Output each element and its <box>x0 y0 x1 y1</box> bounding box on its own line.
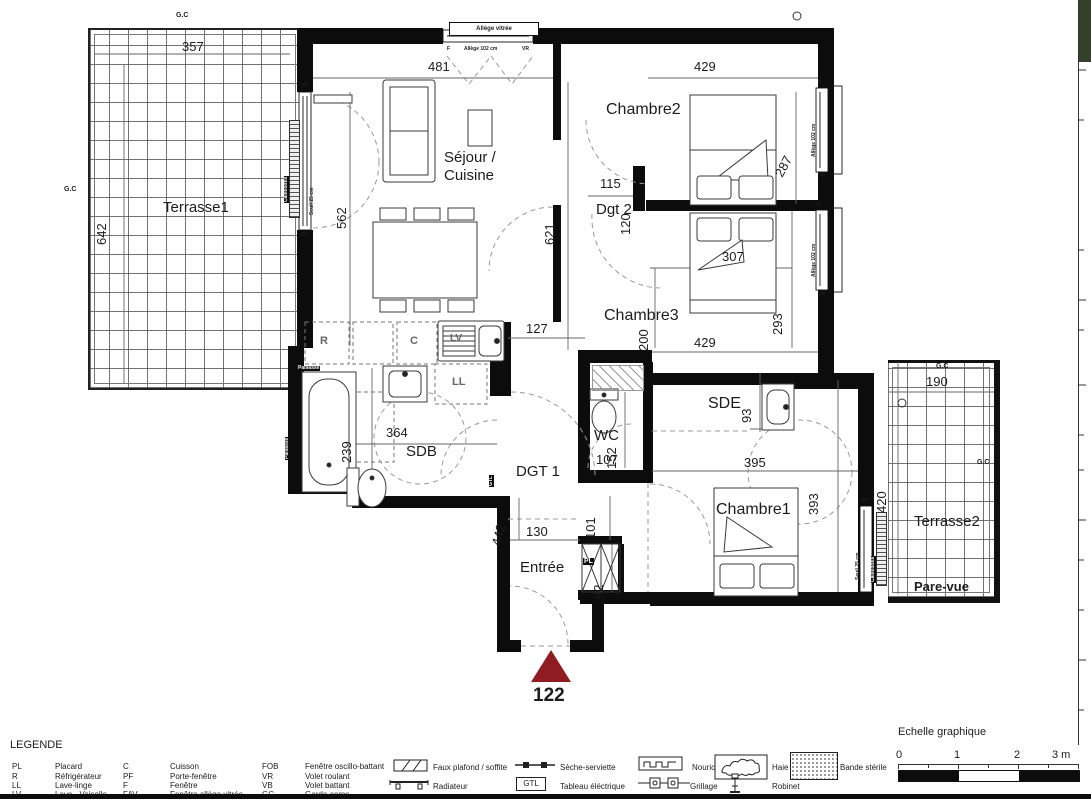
scale-bar-segment <box>959 771 1019 781</box>
scale-tick-3: 3 m <box>1052 750 1070 761</box>
dim-481: 481 <box>428 60 450 73</box>
unit-entry-arrow <box>531 650 571 682</box>
dim-127: 127 <box>526 322 548 335</box>
scale-baseline-tick <box>1078 764 1079 769</box>
dim-101: 101 <box>584 517 597 539</box>
seuil-label-chambre1-window: Seuil 25 cm <box>856 552 861 580</box>
scale-baseline-tick <box>988 764 989 768</box>
dim-621: 621 <box>543 223 556 245</box>
room-label-chambre1: Chambre1 <box>716 502 791 518</box>
room-label-terrasse1: Terrasse1 <box>163 200 229 215</box>
pf-label-chambre1-window: PF <box>862 499 868 504</box>
unit-number: 122 <box>533 686 565 705</box>
gc-label-terrasse2-right: G.C <box>977 459 989 466</box>
room-label-terrasse2: Terrasse2 <box>914 514 980 529</box>
caillebotis-label-left: Caillebotis <box>284 176 289 203</box>
room-label-sejour-line2: Cuisine <box>444 168 494 183</box>
legend-name: Faux plafond / soffite <box>433 763 507 772</box>
allege102-chambre3-window: Allège 102 cm <box>812 244 817 277</box>
dim-562: 562 <box>335 207 348 229</box>
scale-tick-0: 0 <box>896 750 902 761</box>
dim-293: 293 <box>771 313 784 335</box>
scale-baseline-tick <box>1048 764 1049 768</box>
dim-239: 239 <box>340 441 353 463</box>
seuil-label-left-window: Seuil 25 cm <box>310 187 315 215</box>
legend-name: Volet battant <box>305 781 349 790</box>
legend-name: Placard <box>55 762 82 771</box>
pf-label-left-window: PF <box>301 233 307 238</box>
dim-115: 115 <box>600 177 621 190</box>
faux-plafond-symbol <box>393 758 429 779</box>
fridge-letter: R <box>320 336 328 347</box>
legend-name: Robinet <box>772 782 800 791</box>
legend-abbr: FOB <box>262 762 278 771</box>
dim-190: 190 <box>926 375 948 388</box>
dim-107: 107 <box>596 453 618 466</box>
room-label-sejour-line1: Séjour / <box>444 150 496 165</box>
wc-dropped-ceiling-hatch <box>592 365 644 391</box>
column-marker-top <box>793 12 801 20</box>
legend-abbr: VR <box>262 772 273 781</box>
legend-title: LEGENDE <box>10 740 63 751</box>
scale-baseline-tick <box>958 764 959 769</box>
scale-bar-segment <box>899 771 959 781</box>
caillebotis-label-terrasse2: Caillebotis <box>871 556 876 583</box>
dim-307: 307 <box>722 250 744 263</box>
paillasse-label-v: Paillasse <box>285 437 290 460</box>
legend-abbr: PL <box>12 762 22 771</box>
vr-label-chambre3-window: VR <box>818 292 825 297</box>
room-label-chambre2: Chambre2 <box>606 102 681 118</box>
scale-bar-segment <box>1019 771 1079 781</box>
pare-vue-label: Pare-vue <box>914 580 969 593</box>
f-label-chambre2-window: F <box>818 81 821 86</box>
dim-200: 200 <box>637 329 650 351</box>
dim-420: 420 <box>875 491 888 513</box>
room-label-sde: SDE <box>708 396 741 412</box>
nourice-symbol <box>638 756 684 777</box>
bed-chambre2 <box>690 95 776 205</box>
scale-title: Echelle graphique <box>898 727 986 738</box>
legend-abbr: C <box>123 762 129 771</box>
legend-name: Lave-linge <box>55 781 92 790</box>
seche-serviette-symbol <box>513 758 557 776</box>
side-table <box>468 110 492 146</box>
allege102-top-window: Allège 102 cm <box>464 47 497 52</box>
bande-sterile-symbol <box>790 752 838 780</box>
gc-label-terrasse1-top: G.C <box>176 12 188 19</box>
legend-name: Porte-fenêtre <box>170 772 217 781</box>
room-label-sdb: SDB <box>406 444 437 459</box>
allege-vitree-box: Allège vitrée <box>449 22 539 36</box>
column-marker-terrasse2 <box>898 399 906 407</box>
dim-393: 393 <box>807 493 820 515</box>
radiator-sejour <box>314 95 352 103</box>
caillebotis-strip-left <box>289 120 300 218</box>
sheet-bottom-rule <box>0 794 1091 799</box>
vr-label-top-window: VR <box>522 47 529 52</box>
gc-label-terrasse2-top: G.C <box>936 363 948 370</box>
dim-357: 357 <box>182 40 204 53</box>
closet-pl-label: PL <box>583 558 594 565</box>
legend-name: Sèche-serviette <box>560 763 616 772</box>
sofa <box>383 80 435 182</box>
gtl-legend-box: GTL <box>516 777 546 791</box>
legend-name: Haie <box>772 763 788 772</box>
dim-429-chambre2: 429 <box>694 60 716 73</box>
plan-linework <box>0 0 1091 800</box>
dim-130: 130 <box>526 525 548 538</box>
legend-name: Cuisson <box>170 762 199 771</box>
scale-bar <box>898 770 1080 782</box>
room-label-dgt1: DGT 1 <box>516 464 560 479</box>
legend-name: Volet roulant <box>305 772 349 781</box>
room-label-wc: WC <box>594 428 619 443</box>
cooktop-letter: C <box>410 336 418 347</box>
kitchen-sink-unit <box>438 321 504 361</box>
legend-abbr: PF <box>123 772 133 781</box>
legend-abbr: VB <box>262 781 273 790</box>
room-label-dgt2: Dgt 2 <box>596 202 632 217</box>
scale-tick-1: 1 <box>954 750 960 761</box>
scale-tick-2: 2 <box>1014 750 1020 761</box>
washer-letter: LL <box>452 377 465 388</box>
dim-429-chambre3: 429 <box>694 336 716 349</box>
legend-abbr: LL <box>12 781 21 790</box>
dim-395: 395 <box>744 456 766 469</box>
gc-label-terrasse1-left: G.C <box>64 186 76 193</box>
scale-baseline-tick <box>898 764 899 769</box>
vr-label-left-window: VR <box>301 84 308 89</box>
dim-364: 364 <box>386 426 408 439</box>
f-label-top-window: F <box>447 47 450 52</box>
vr-label-chambre2-window: VR <box>818 174 825 179</box>
legend-name: Fenêtre oscillo-battant <box>305 762 384 771</box>
dishwasher-letter: LV <box>450 334 462 344</box>
sheet-edge-ruler <box>1078 0 1091 745</box>
floor-plan: G.C G.C G.C G.C 357 481 429 642 562 621 … <box>0 0 1091 800</box>
sde-sink <box>762 384 794 430</box>
legend-abbr: F <box>123 781 128 790</box>
scale-baseline-tick <box>928 764 929 768</box>
sdb-sink <box>383 366 427 402</box>
f-label-chambre3-window: F <box>818 203 821 208</box>
grillage-symbol <box>638 776 690 795</box>
paillasse-label-h: Paillasse <box>297 366 320 371</box>
legend-name: Tableau éléctrique <box>560 782 625 791</box>
sdb-toilet <box>347 468 386 507</box>
dim-93: 93 <box>740 409 753 423</box>
dining-table <box>373 208 477 312</box>
scale-baseline-tick <box>1018 764 1019 769</box>
legend-name: Radiateur <box>433 782 468 791</box>
legend-name: Réfrigérateur <box>55 772 102 781</box>
dim-92: 92 <box>592 585 605 599</box>
room-label-chambre3: Chambre3 <box>604 308 679 324</box>
dim-642: 642 <box>95 223 108 245</box>
caillebotis-strip-terrasse2 <box>876 512 887 586</box>
room-label-entree: Entrée <box>520 560 564 575</box>
legend-name: Bande stérile <box>840 763 887 772</box>
legend-abbr: R <box>12 772 18 781</box>
allege102-chambre2-window: Allège 102 cm <box>812 124 817 157</box>
gtl-plan-label: GTL <box>489 475 494 487</box>
legend-name: Fenêtre <box>170 781 198 790</box>
